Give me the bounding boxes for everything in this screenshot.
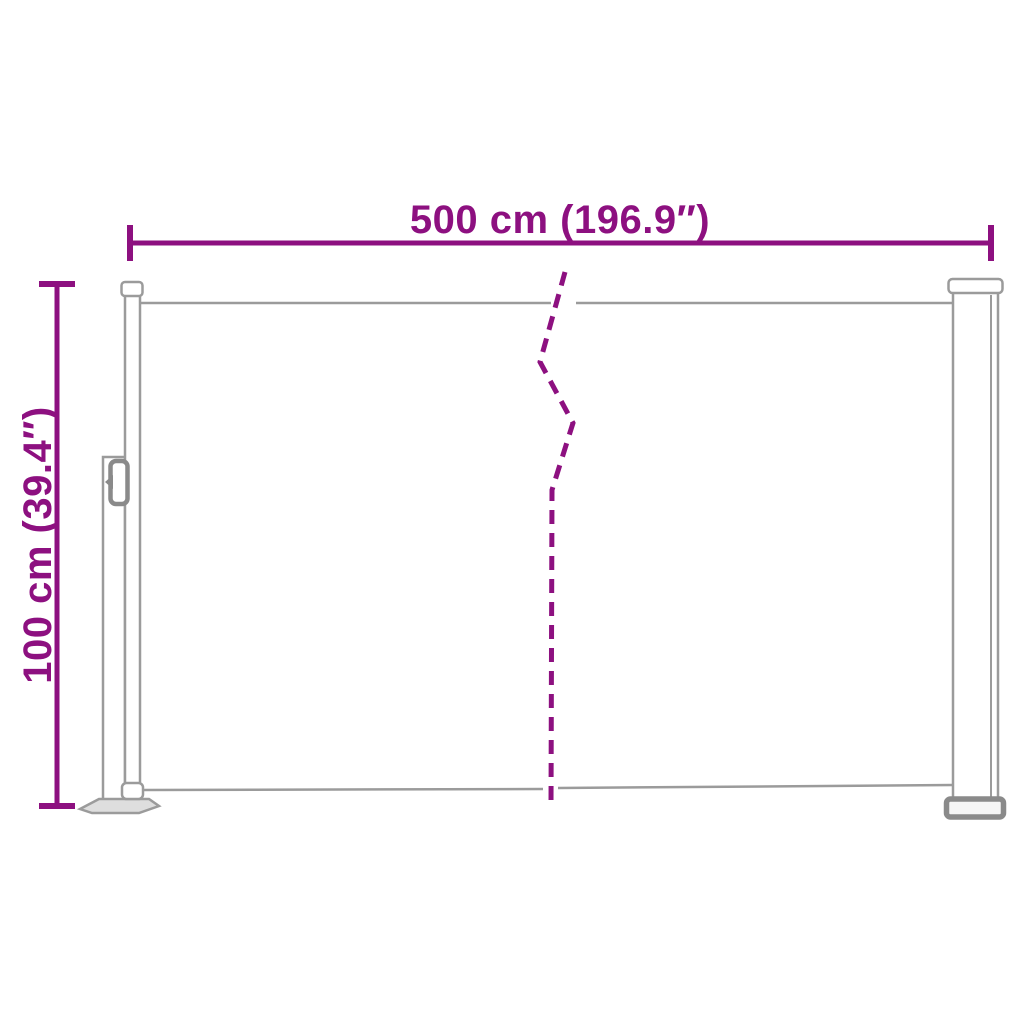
fabric-break-line <box>540 272 573 807</box>
height-dimension-label: 100 cm (39.4″) <box>16 406 60 683</box>
width-dimension-label: 500 cm (196.9″) <box>410 198 710 242</box>
cassette-top-cap <box>949 279 1003 293</box>
latch-handle <box>111 461 128 504</box>
post-bottom-end-cap <box>122 783 143 799</box>
fabric-bottom-edge-left <box>143 789 543 790</box>
post-top-cap <box>122 282 143 296</box>
awning-diagram-canvas: 500 cm (196.9″) 100 cm (39.4″) <box>0 0 1024 1024</box>
product-dimension-diagram: 500 cm (196.9″) 100 cm (39.4″) <box>0 0 1024 1024</box>
post-pole <box>125 293 140 790</box>
fabric-bottom-edge-right <box>558 785 953 788</box>
awning-drawing <box>80 279 1004 817</box>
post-base-plate <box>80 799 159 813</box>
cassette-foot <box>947 799 1004 817</box>
dimension-annotations: 500 cm (196.9″) 100 cm (39.4″) <box>16 198 991 807</box>
post-outer-rail <box>103 457 125 802</box>
